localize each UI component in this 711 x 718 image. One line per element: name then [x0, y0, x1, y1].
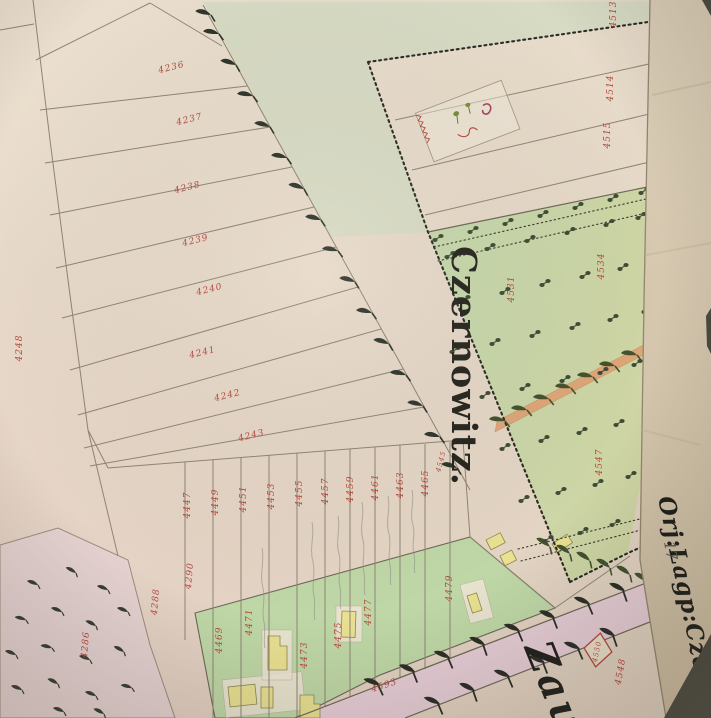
- cadastral-map-canvas: 4236 4237 4238 4239 4240 4241 4242 4243 …: [0, 0, 711, 718]
- map-photo: 4236 4237 4238 4239 4240 4241 4242 4243 …: [0, 0, 711, 718]
- photo-vignette: [0, 0, 711, 718]
